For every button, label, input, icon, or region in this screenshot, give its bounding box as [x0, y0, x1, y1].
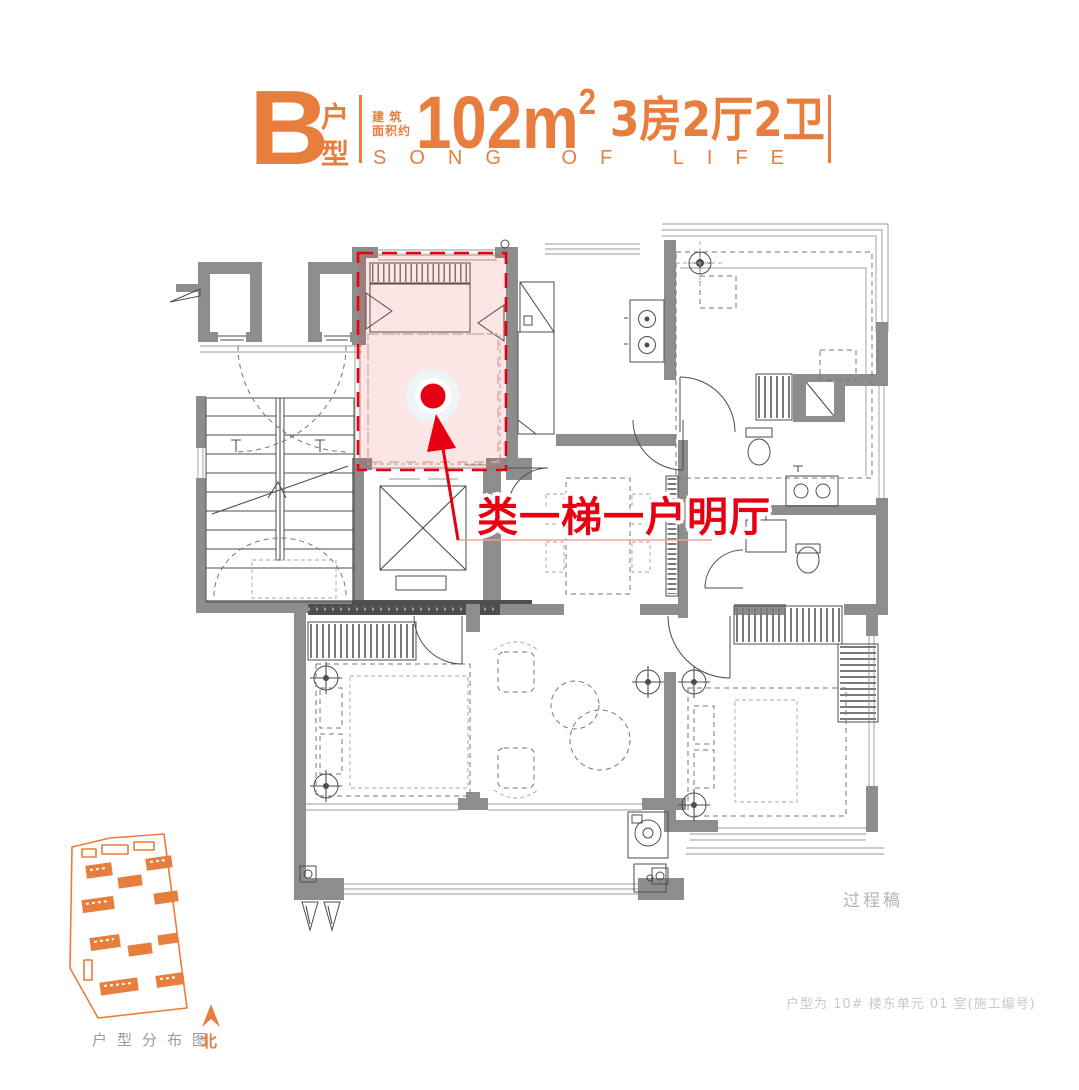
sitemap-caption: 户型分布图: [92, 1029, 217, 1050]
draft-watermark: 过程稿: [843, 886, 903, 911]
unit-note: 户型为 10# 楼东单元 01 室(施工编号): [786, 993, 1036, 1012]
highlight-annotation: 类一梯一户明厅: [477, 483, 771, 543]
kitchen-fixtures: [501, 240, 664, 434]
plan-walls: [176, 240, 888, 900]
location-marker: [406, 369, 460, 423]
north-arrow-icon: [202, 1004, 220, 1027]
bedroom-left: [308, 622, 470, 802]
flex-room: [676, 241, 872, 478]
floor-plan-canvas: [0, 0, 1079, 1090]
living-room: [494, 642, 664, 798]
elevator-shaft: [380, 479, 466, 590]
north-label: 北: [201, 1028, 217, 1052]
site-sketch: [70, 834, 220, 1027]
balcony-fixtures: [300, 812, 668, 930]
floorplan-page: B 户型 建 筑 面积约 102m2 3房2厅2卫 SONG OF LIFE: [0, 0, 1079, 1090]
bedroom-right: [678, 606, 878, 821]
